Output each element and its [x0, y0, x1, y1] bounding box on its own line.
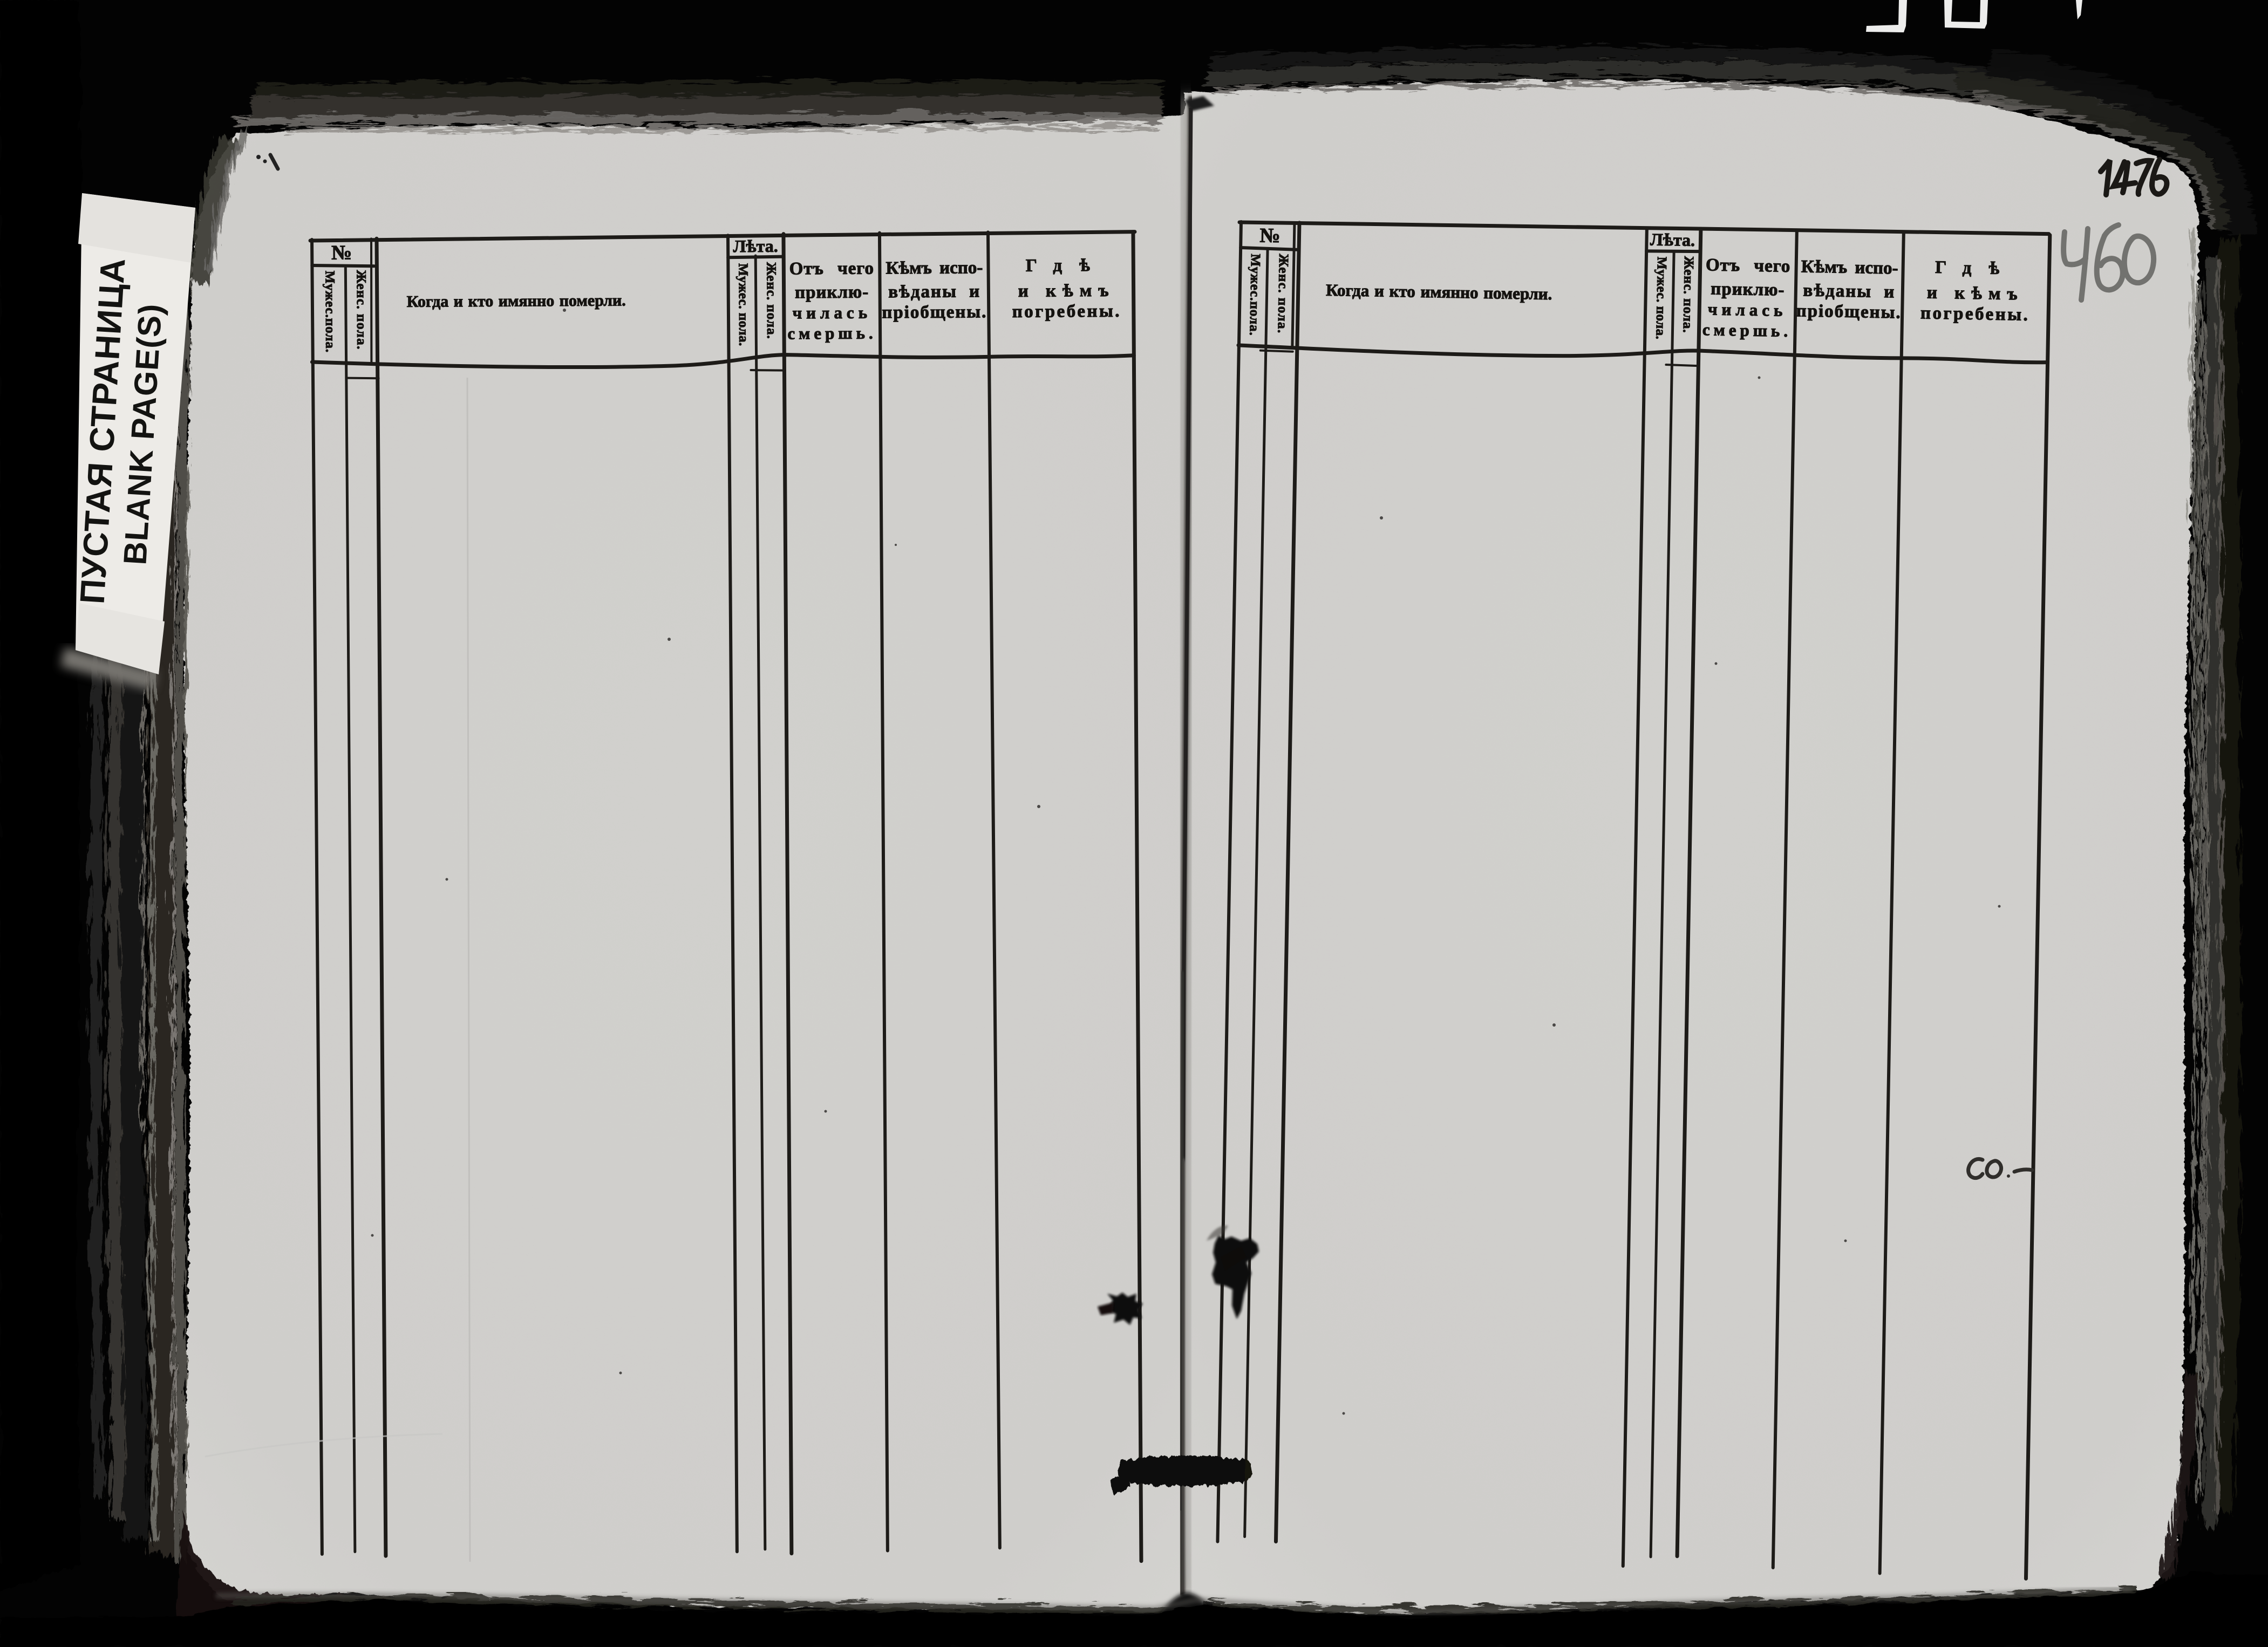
svg-text:№: №: [331, 242, 352, 264]
svg-text:Мужес.пола.: Мужес.пола.: [1247, 254, 1263, 336]
svg-text:и кѣмъ: и кѣмъ: [1927, 283, 2024, 304]
svg-text:Мужес. пола.: Мужес. пола.: [1653, 257, 1669, 340]
svg-text:Отъ чего: Отъ чего: [1706, 255, 1791, 276]
svg-text:Мужес. пола.: Мужес. пола.: [735, 263, 751, 346]
svg-text:Лѣта.: Лѣта.: [733, 236, 778, 256]
svg-text:чилась: чилась: [1708, 299, 1787, 320]
svg-text:Гдѣ: Гдѣ: [1935, 258, 2017, 279]
svg-text:погребены.: погребены.: [1920, 303, 2030, 325]
svg-text:Кѣмъ испо-: Кѣмъ испо-: [1801, 257, 1898, 278]
svg-text:Кѣмъ испо-: Кѣмъ испо-: [886, 258, 983, 278]
svg-text:№: №: [1259, 224, 1281, 248]
svg-text:смершь.: смершь.: [787, 324, 876, 343]
svg-text:Женс. пола.: Женс. пола.: [353, 270, 369, 350]
svg-text:Женс. пола.: Женс. пола.: [1275, 254, 1291, 334]
svg-text:вѣданы и: вѣданы и: [1803, 281, 1895, 302]
svg-text:вѣданы и: вѣданы и: [888, 282, 980, 302]
svg-text:погребены.: погребены.: [1012, 302, 1121, 322]
svg-text:приклю-: приклю-: [795, 283, 869, 303]
svg-text:пріобщены.: пріобщены.: [882, 302, 987, 322]
svg-text:Когда и кто имянно померли.: Когда и кто имянно померли.: [407, 291, 626, 310]
svg-text:приклю-: приклю-: [1711, 279, 1785, 300]
svg-text:Женс. пола.: Женс. пола.: [1680, 256, 1696, 333]
svg-text:Женс. пола.: Женс. пола.: [764, 262, 779, 339]
svg-text:смершь.: смершь.: [1702, 320, 1792, 340]
svg-text:Лѣта.: Лѣта.: [1650, 230, 1695, 250]
svg-text:Когда и кто имянно померли.: Когда и кто имянно померли.: [1326, 281, 1552, 303]
svg-text:чилась: чилась: [793, 303, 872, 323]
svg-text:Гдѣ: Гдѣ: [1026, 256, 1107, 276]
svg-text:пріобщены.: пріобщены.: [1796, 301, 1902, 322]
svg-text:Отъ чего: Отъ чего: [789, 259, 875, 279]
svg-text:Мужес.пола.: Мужес.пола.: [322, 271, 337, 353]
svg-text:и кѣмъ: и кѣмъ: [1018, 281, 1115, 301]
